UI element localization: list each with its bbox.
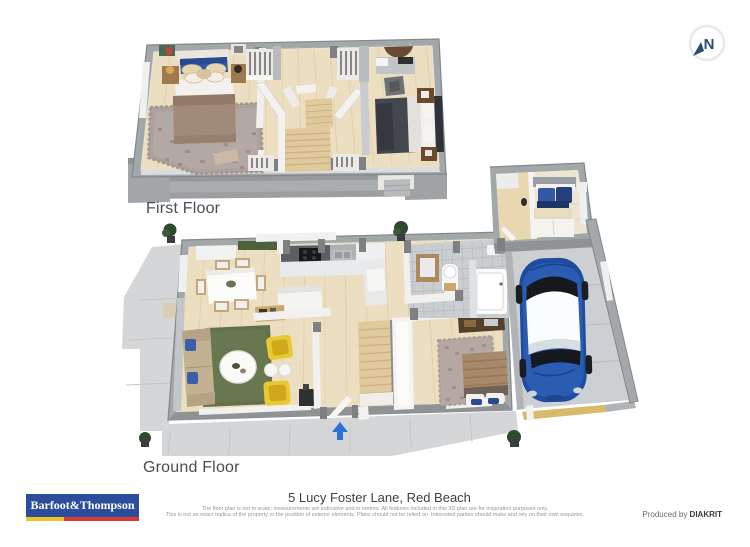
- svg-text:N: N: [704, 36, 715, 53]
